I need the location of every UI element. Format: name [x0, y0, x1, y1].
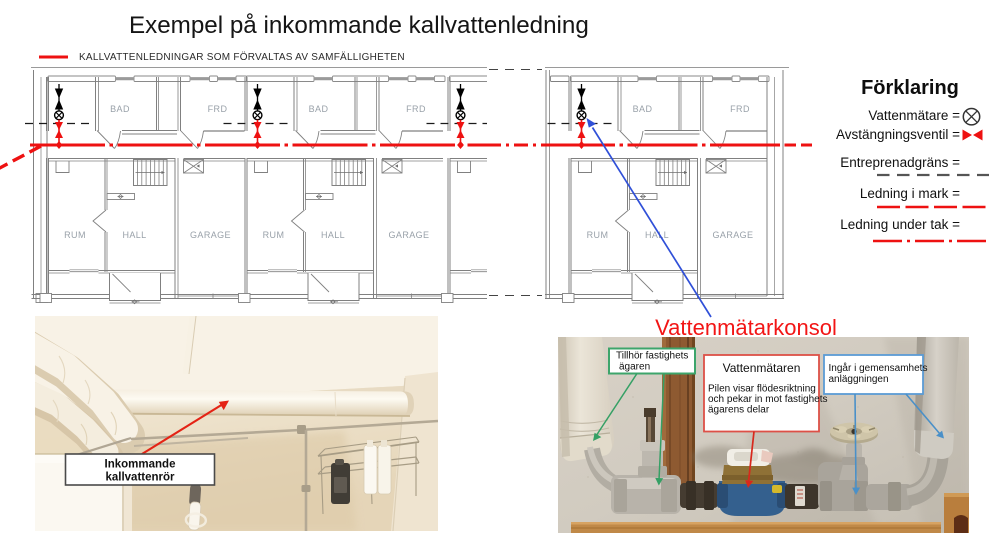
svg-text:ägarens delar: ägarens delar	[708, 405, 770, 416]
svg-text:FRD: FRD	[730, 104, 750, 114]
svg-text:Ingår i gemensamhets: Ingår i gemensamhets	[829, 362, 928, 374]
svg-text:RUM: RUM	[263, 230, 285, 240]
svg-text:FRD: FRD	[406, 104, 426, 114]
svg-text:HALL: HALL	[321, 230, 345, 240]
svg-text:och pekar in mot fastighets: och pekar in mot fastighets	[708, 394, 828, 405]
svg-text:RUM: RUM	[587, 230, 609, 240]
svg-text:HALL: HALL	[122, 230, 146, 240]
svg-text:GARAGE: GARAGE	[389, 230, 430, 240]
svg-text:GARAGE: GARAGE	[713, 230, 754, 240]
svg-text:Tillhör fastighets: Tillhör fastighets	[616, 351, 688, 362]
svg-text:kallvattenrör: kallvattenrör	[105, 472, 175, 484]
svg-text:ägaren: ägaren	[619, 362, 650, 373]
svg-text:BAD: BAD	[309, 104, 329, 114]
svg-text:Vattenmätaren: Vattenmätaren	[723, 361, 801, 375]
svg-text:FRD: FRD	[208, 104, 228, 114]
svg-text:GARAGE: GARAGE	[190, 230, 231, 240]
svg-text:Inkommande: Inkommande	[105, 459, 176, 471]
svg-text:BAD: BAD	[633, 104, 653, 114]
svg-text:RUM: RUM	[64, 230, 86, 240]
svg-text:Pilen visar flödesriktning: Pilen visar flödesriktning	[708, 384, 816, 395]
svg-text:anläggningen: anläggningen	[829, 374, 889, 385]
svg-text:BAD: BAD	[110, 104, 130, 114]
